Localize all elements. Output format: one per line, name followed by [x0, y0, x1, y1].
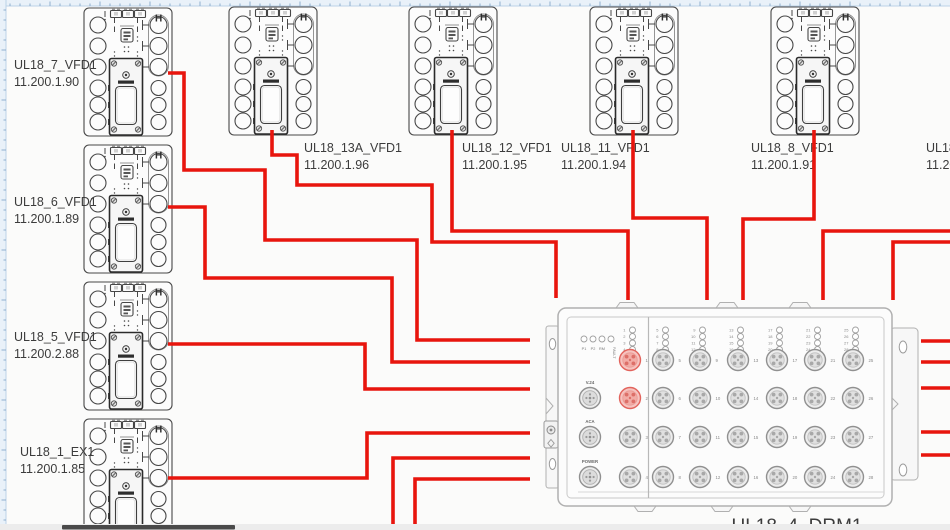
- wire-ul18-12-to-drm[interactable]: [452, 130, 628, 300]
- device-ip-label: 11.200.1.95: [462, 158, 527, 172]
- port-number: 19: [793, 435, 798, 440]
- device-name-label: UL18_6_VFD1: [14, 195, 97, 209]
- wire-bottom-in-2[interactable]: [415, 479, 530, 530]
- drm-top-tab: [789, 303, 811, 309]
- device-ip-label: 11.200.1.91: [751, 158, 816, 172]
- device-label-group: UL18_11_VFD111.200.1.94: [561, 141, 650, 172]
- drm-bottom-tab: [634, 506, 656, 512]
- wire-ul18-5-to-drm[interactable]: [168, 344, 530, 389]
- status-led-label: P2: [591, 347, 596, 351]
- port-number: 27: [869, 435, 874, 440]
- status-led-label: RM: [599, 347, 605, 351]
- port-number: 20: [793, 475, 798, 480]
- device-ip-label: 11.200.1.85: [20, 462, 85, 476]
- svg-text:POWER: POWER: [582, 459, 599, 464]
- drm-device[interactable]: P1P2RMFAULT12345678910111213141516171819…: [544, 303, 918, 512]
- device-ip-label: 11.200.2.88: [14, 347, 79, 361]
- status-led-label: FAULT: [612, 347, 616, 359]
- drm-left-bracket: [544, 326, 559, 488]
- svg-text:15: 15: [729, 341, 734, 346]
- port-number: 18: [793, 396, 798, 401]
- port-number: 15: [754, 435, 759, 440]
- svg-text:21: 21: [806, 328, 811, 333]
- port-number: 25: [869, 358, 874, 363]
- svg-text:25: 25: [844, 328, 849, 333]
- drm-right-bracket: [890, 328, 918, 480]
- drm-top-tab: [716, 303, 738, 309]
- device-name-label: UL18_8_VFD1: [751, 141, 834, 155]
- status-led-rm: [599, 336, 605, 342]
- device-ul18-7-vfd1[interactable]: UL18_7_VFD111.200.1.90: [14, 8, 172, 136]
- device-ul18-1-ex1[interactable]: UL18_1_EX111.200.1.85: [20, 419, 172, 530]
- port-number: 17: [793, 358, 798, 363]
- device-name-label: UL18_11_VFD1: [561, 141, 650, 155]
- device-ip-label: 11.200.1.96: [304, 158, 369, 172]
- wire-ul18-11-to-drm[interactable]: [633, 130, 707, 300]
- drm-bottom-tab: [789, 506, 811, 512]
- device-ip-label: 11.200.1.94: [561, 158, 626, 172]
- status-led-fault: [608, 336, 614, 342]
- offscreen-device-ip: 11.20: [926, 158, 950, 172]
- svg-text:23: 23: [806, 341, 811, 346]
- port-number: 21: [831, 358, 836, 363]
- device-label-group: UL18_8_VFD111.200.1.91: [751, 141, 834, 172]
- svg-text:ACA: ACA: [585, 419, 594, 424]
- svg-text:22: 22: [806, 334, 811, 339]
- device-ul18-5-vfd1[interactable]: UL18_5_VFD111.200.2.88: [14, 282, 172, 410]
- drm-connector-power[interactable]: POWER: [580, 459, 601, 488]
- device-name-label: UL18_13A_VFD1: [304, 141, 402, 155]
- device-ip-label: 11.200.1.90: [14, 75, 79, 89]
- offscreen-device-label: UL18: [926, 141, 950, 155]
- port-number: 22: [831, 396, 836, 401]
- port-number: 12: [716, 475, 721, 480]
- drm-bottom-tab: [711, 506, 733, 512]
- port-number: 14: [754, 396, 759, 401]
- status-led-p2: [590, 336, 596, 342]
- svg-text:14: 14: [729, 334, 734, 339]
- wire-right-in-2[interactable]: [893, 242, 950, 300]
- port-number: 26: [869, 396, 874, 401]
- device-ul18-12-vfd1[interactable]: UL18_12_VFD111.200.1.95: [409, 7, 552, 172]
- svg-text:19: 19: [768, 341, 773, 346]
- drm-top-tab: [616, 303, 638, 309]
- status-led-p1: [581, 336, 587, 342]
- svg-text:17: 17: [768, 328, 773, 333]
- device-ul18-11-vfd1[interactable]: UL18_11_VFD111.200.1.94: [561, 7, 678, 172]
- port-number: 16: [754, 475, 759, 480]
- device-name-label: UL18_12_VFD1: [462, 141, 552, 155]
- port-number: 10: [716, 396, 721, 401]
- svg-text:18: 18: [768, 334, 773, 339]
- diagram-canvas[interactable]: H: [0, 0, 950, 530]
- port-number: 28: [869, 475, 874, 480]
- device-label-group: UL18_13A_VFD111.200.1.96: [304, 141, 402, 172]
- device-name-label: UL18_5_VFD1: [14, 330, 97, 344]
- wire-ul18-1-to-drm[interactable]: [168, 433, 530, 478]
- port-number: 11: [716, 435, 721, 440]
- port-number: 24: [831, 475, 836, 480]
- device-ul18-8-vfd1[interactable]: UL18_8_VFD111.200.1.91: [751, 7, 859, 172]
- top-ruler: [0, 0, 950, 6]
- device-ul18-6-vfd1[interactable]: UL18_6_VFD111.200.1.89: [14, 145, 172, 273]
- device-name-label: UL18_7_VFD1: [14, 58, 97, 72]
- port-number: 23: [831, 435, 836, 440]
- horizontal-scrollbar-thumb[interactable]: [62, 525, 235, 530]
- left-ruler: [0, 0, 6, 530]
- svg-text:13: 13: [729, 328, 734, 333]
- svg-text:V.24: V.24: [586, 380, 595, 385]
- wire-ul18-8-to-drm[interactable]: [743, 130, 814, 300]
- device-label-group: UL18_1_EX111.200.1.85: [20, 445, 94, 476]
- port-number: 13: [754, 358, 759, 363]
- status-led-label: P1: [582, 347, 587, 351]
- svg-text:27: 27: [844, 341, 849, 346]
- svg-text:26: 26: [844, 334, 849, 339]
- device-name-label: UL18_1_EX1: [20, 445, 94, 459]
- wire-ul18-13a-to-drm[interactable]: [272, 130, 556, 298]
- diagram-stage: H: [0, 0, 950, 530]
- device-label-group: UL18_12_VFD111.200.1.95: [462, 141, 552, 172]
- device-ip-label: 11.200.1.89: [14, 212, 79, 226]
- svg-text:10: 10: [691, 334, 696, 339]
- device-ul18-13a-vfd1[interactable]: UL18_13A_VFD111.200.1.96: [229, 7, 402, 172]
